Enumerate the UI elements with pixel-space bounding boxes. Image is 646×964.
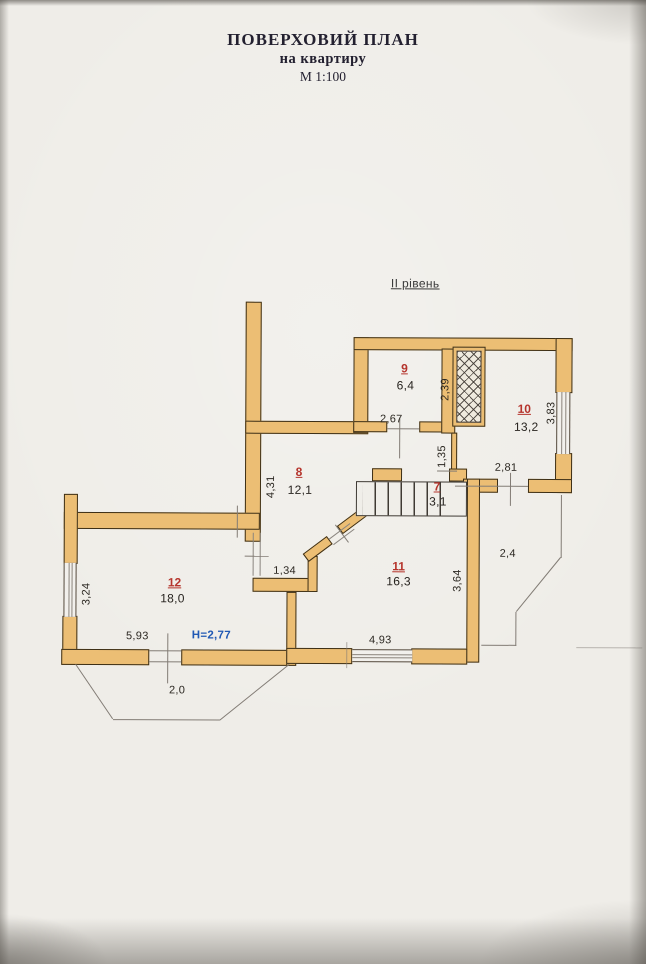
room8-number: 8 [296, 465, 303, 479]
wall-room12-bottom-right [181, 649, 289, 665]
dim-room12-window: 3,24 [80, 583, 92, 606]
room10-area: 13,2 [514, 420, 539, 434]
dim-tick-1-35 [437, 470, 457, 471]
wall-room9-left [353, 337, 368, 433]
room7-area: 3,1 [429, 494, 447, 508]
terrace-right-bottom [481, 645, 516, 646]
door-room9-threshold [387, 428, 419, 429]
dim-tick-4-93 [346, 642, 347, 668]
scanned-floor-plan-page: ПОВЕРХОВИЙ ПЛАН на квартиру М 1:100 ІІ р… [0, 0, 646, 964]
room12-area: 18,0 [160, 591, 185, 605]
dim-room10-window: 3,83 [545, 402, 557, 425]
dim-nook-width: 1,34 [273, 565, 296, 577]
balcony-left-diagonal [75, 664, 113, 719]
door-balcony-threshold-bottom [149, 661, 181, 662]
dim-room9-depth: 2,39 [439, 378, 451, 401]
room11-area: 16,3 [386, 574, 411, 588]
dim-tick-balcony-door [167, 633, 169, 683]
wall-room12-left-upper [64, 494, 78, 564]
dim-room8-depth: 4,31 [265, 475, 277, 498]
wall-room10-right-top [555, 338, 572, 393]
wall-stairs-landing [372, 468, 402, 481]
room11-number: 11 [392, 559, 405, 573]
wall-room12-top [64, 512, 260, 530]
room7-number: 7 [434, 479, 441, 493]
wall-corridor-partition [451, 433, 457, 471]
dim-room10-width: 2,81 [495, 462, 518, 474]
staircase [356, 481, 467, 516]
wall-room12-bottom-left [61, 649, 149, 665]
shaft-hatch-pattern [456, 351, 481, 423]
wall-diagonal-lower [303, 536, 333, 562]
dim-corridor: 1,35 [436, 445, 448, 468]
terrace-right-edge [561, 495, 562, 558]
terrace-right-lower-edge [515, 612, 516, 646]
room9-number: 9 [401, 361, 408, 375]
wall-room10-bottom-corner [528, 479, 572, 493]
balcony-right-diagonal [220, 664, 290, 721]
door-room12-nook [253, 533, 261, 576]
window-room12-left [63, 563, 76, 617]
window-room11-bottom [352, 649, 412, 662]
room12-number: 12 [168, 575, 181, 589]
door-balcony-threshold-top [149, 650, 181, 651]
dim-balcony-depth: 2,0 [169, 684, 185, 696]
wall-room11-bottom-right [411, 648, 467, 664]
terrace-faint-line [576, 647, 642, 648]
ventilation-shaft [452, 347, 485, 427]
dim-tick-1-34 [245, 556, 269, 557]
dim-tick-room12-top [237, 506, 239, 538]
room9-area: 6,4 [397, 378, 415, 392]
wall-room8-top [245, 421, 368, 435]
dim-tick-2-81 [510, 473, 512, 506]
dim-room11-depth: 3,64 [452, 569, 464, 592]
wall-room11-right [466, 479, 480, 663]
balcony-bottom-line [113, 719, 220, 721]
dim-room11-width: 4,93 [369, 634, 392, 646]
dim-room12-width: 5,93 [126, 630, 149, 642]
floor-plan-drawing: ІІ рівень [0, 0, 646, 964]
terrace-right-diagonal [516, 557, 561, 612]
wall-room11-bottom-left [286, 648, 352, 664]
dim-terrace-right: 2,4 [500, 548, 516, 560]
room10-number: 10 [518, 402, 531, 416]
height-mark: Н=2,77 [192, 629, 231, 641]
dim-room9-width: 2,67 [380, 413, 403, 425]
window-room10-right [556, 392, 570, 454]
room8-area: 12,1 [288, 483, 313, 497]
level-label: ІІ рівень [391, 276, 440, 290]
